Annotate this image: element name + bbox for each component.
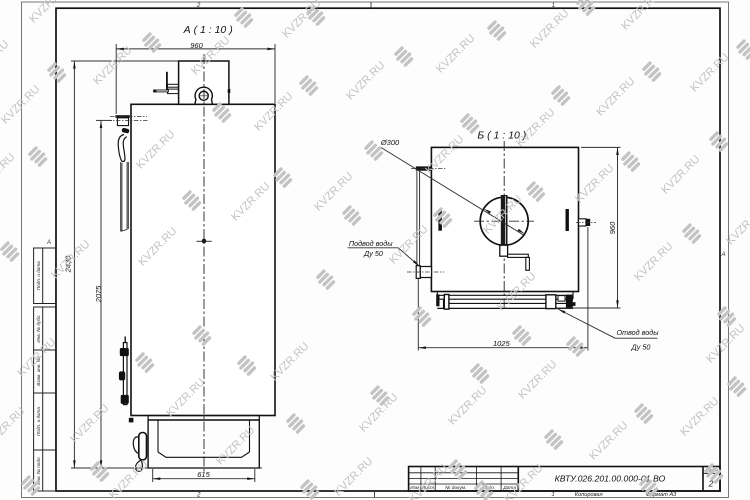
svg-text:KVZR.RU: KVZR.RU <box>387 223 430 266</box>
svg-text:KVZR.RU: KVZR.RU <box>678 395 721 438</box>
svg-text:KVZR.RU: KVZR.RU <box>632 240 675 283</box>
svg-text:2: 2 <box>196 3 201 9</box>
svg-text:KVZR.RU: KVZR.RU <box>91 44 134 87</box>
svg-text:KVZR.RU: KVZR.RU <box>280 0 323 40</box>
svg-text:KVZR.RU: KVZR.RU <box>27 0 70 25</box>
svg-text:KVZR.RU: KVZR.RU <box>594 75 637 118</box>
svg-text:Инв. № подл.: Инв. № подл. <box>36 456 41 485</box>
svg-text:KVZR.RU: KVZR.RU <box>332 455 375 498</box>
svg-text:А: А <box>46 240 51 246</box>
svg-text:2: 2 <box>196 493 201 499</box>
svg-text:KVZR.RU: KVZR.RU <box>587 419 630 462</box>
svg-text:KVZR.RU: KVZR.RU <box>528 7 571 50</box>
svg-text:KVZR.RU: KVZR.RU <box>107 458 150 500</box>
svg-text:KVZR.RU: KVZR.RU <box>659 153 702 196</box>
svg-text:KVZR.RU: KVZR.RU <box>573 162 616 205</box>
svg-text:А ( 1 : 10 ): А ( 1 : 10 ) <box>183 24 233 36</box>
svg-text:KVZR.RU: KVZR.RU <box>434 32 477 75</box>
svg-text:615: 615 <box>197 470 210 479</box>
svg-text:№ докум.: № докум. <box>445 485 466 491</box>
svg-text:KVZR.RU: KVZR.RU <box>214 424 257 467</box>
svg-text:Инв. № дубл.: Инв. № дубл. <box>36 314 41 342</box>
svg-text:KVZR.RU: KVZR.RU <box>619 0 662 32</box>
svg-text:Ду 50: Ду 50 <box>363 249 383 258</box>
svg-text:А: А <box>720 252 725 258</box>
svg-text:2075: 2075 <box>94 285 103 304</box>
svg-text:Копировал: Копировал <box>575 492 604 498</box>
svg-text:KVZR.RU: KVZR.RU <box>344 59 387 102</box>
svg-text:KVZR.RU: KVZR.RU <box>516 358 559 401</box>
svg-text:KVZR.RU: KVZR.RU <box>502 462 545 500</box>
svg-text:KVZR.RU: KVZR.RU <box>0 38 11 81</box>
svg-text:KVZR.RU: KVZR.RU <box>0 405 27 448</box>
svg-text:Подвод воды: Подвод воды <box>349 239 393 248</box>
svg-text:Ду 50: Ду 50 <box>631 342 651 351</box>
svg-text:960: 960 <box>608 221 617 234</box>
svg-text:Подп. и дата: Подп. и дата <box>36 261 41 290</box>
svg-text:960: 960 <box>190 41 203 50</box>
svg-text:KVZR.RU: KVZR.RU <box>407 462 450 500</box>
svg-text:KVZR.RU: KVZR.RU <box>514 106 557 149</box>
svg-text:1: 1 <box>551 492 554 498</box>
svg-text:KVZR.RU: KVZR.RU <box>704 322 747 365</box>
svg-text:1025: 1025 <box>493 339 511 348</box>
svg-text:KVZR.RU: KVZR.RU <box>446 384 489 427</box>
svg-text:KVZR.RU: KVZR.RU <box>0 151 17 194</box>
svg-text:Подп. и дата: Подп. и дата <box>36 407 41 436</box>
svg-text:1: 1 <box>552 3 555 9</box>
svg-text:Ø300: Ø300 <box>380 138 400 147</box>
svg-text:KVZR.RU: KVZR.RU <box>688 51 731 94</box>
svg-text:Отвод воды: Отвод воды <box>617 328 660 337</box>
